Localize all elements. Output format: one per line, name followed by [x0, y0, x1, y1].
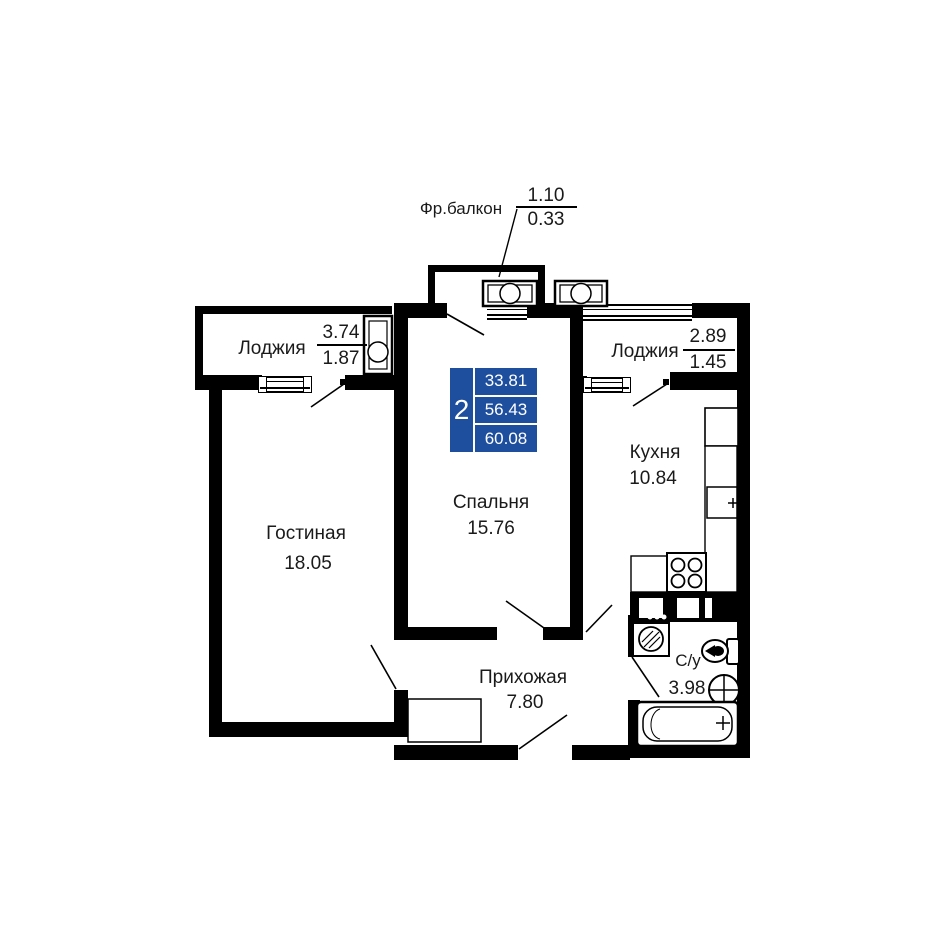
wall — [628, 615, 640, 657]
balcony-parapet — [428, 265, 435, 310]
bathroom-label: С/у — [675, 651, 701, 671]
total-area-value: 60.08 — [475, 425, 537, 452]
loggia-left-area-reduced: 1.87 — [323, 348, 360, 370]
wall — [394, 690, 408, 737]
wall — [570, 303, 583, 640]
room-count: 2 — [450, 368, 473, 452]
kitchen-label: Кухня — [630, 442, 681, 464]
bathtub — [637, 702, 738, 746]
balcony-door-swing — [447, 314, 484, 335]
apartment-area-value: 56.43 — [475, 397, 537, 424]
loggia-right-label: Лоджия — [611, 341, 678, 363]
wall — [209, 722, 398, 737]
bedroom-label: Спальня — [453, 492, 529, 514]
fraction-line — [683, 349, 735, 351]
window-cap — [583, 377, 592, 393]
wall — [394, 745, 518, 760]
vent-shaft — [677, 598, 699, 618]
radiator-window — [585, 377, 629, 393]
stove — [667, 553, 706, 592]
fr-balcony-label: Фр.балкон — [420, 199, 502, 219]
bathroom-area: 3.98 — [669, 678, 706, 700]
wall — [628, 745, 750, 758]
kitchen-door-swing — [586, 605, 612, 632]
wall — [408, 627, 497, 640]
living-area-value: 33.81 — [475, 368, 537, 395]
wall — [394, 303, 408, 640]
loggia-left-label: Лоджия — [238, 338, 305, 360]
kitchen-area: 10.84 — [629, 468, 677, 490]
fraction-line — [317, 344, 367, 346]
wall — [195, 306, 392, 314]
door-hinge — [663, 379, 669, 385]
apartment-summary-box: 2 33.81 56.43 60.08 — [450, 368, 537, 452]
wall — [543, 627, 583, 640]
window-cap — [303, 376, 312, 393]
hallway-label: Прихожая — [479, 667, 567, 689]
wall — [394, 303, 447, 318]
window — [487, 304, 527, 320]
bedroom-door-swing — [506, 601, 544, 628]
radiator-window — [260, 376, 310, 393]
vent-shaft — [705, 598, 712, 618]
fr-balcony-area-reduced: 0.33 — [528, 209, 565, 231]
living-room-area: 18.05 — [284, 553, 332, 575]
loggia-right-door-swing — [633, 384, 667, 406]
window-unit-icon — [364, 316, 392, 374]
entrance-door-swing — [519, 715, 567, 749]
loggia-left-door-swing — [311, 384, 344, 407]
kitchen-cabinet — [631, 408, 738, 592]
vent-shaft — [639, 598, 663, 618]
wall — [195, 375, 262, 390]
balcony-parapet — [538, 265, 545, 305]
wall — [209, 388, 222, 737]
loggia-right-area-reduced: 1.45 — [690, 352, 727, 374]
wardrobe — [408, 699, 481, 742]
bathroom-door-swing — [632, 657, 659, 697]
fraction-line — [516, 206, 577, 208]
window-cap — [258, 376, 267, 393]
loggia-left-area-full: 3.74 — [323, 322, 360, 344]
balcony-parapet — [428, 265, 545, 272]
loggia-right-area-full: 2.89 — [690, 326, 727, 348]
wall — [670, 372, 750, 390]
window — [583, 304, 692, 321]
floor-plan: Фр.балкон 1.10 0.33 Лоджия 3.74 1.87 Лод… — [0, 0, 950, 950]
living-room-door-swing — [371, 645, 396, 689]
hallway-area: 7.80 — [507, 692, 544, 714]
bedroom-area: 15.76 — [467, 518, 515, 540]
toilet — [702, 639, 739, 664]
fr-balcony-area-full: 1.10 — [528, 185, 565, 207]
living-room-label: Гостиная — [266, 523, 346, 545]
wall — [572, 745, 630, 760]
window-cap — [622, 377, 631, 393]
